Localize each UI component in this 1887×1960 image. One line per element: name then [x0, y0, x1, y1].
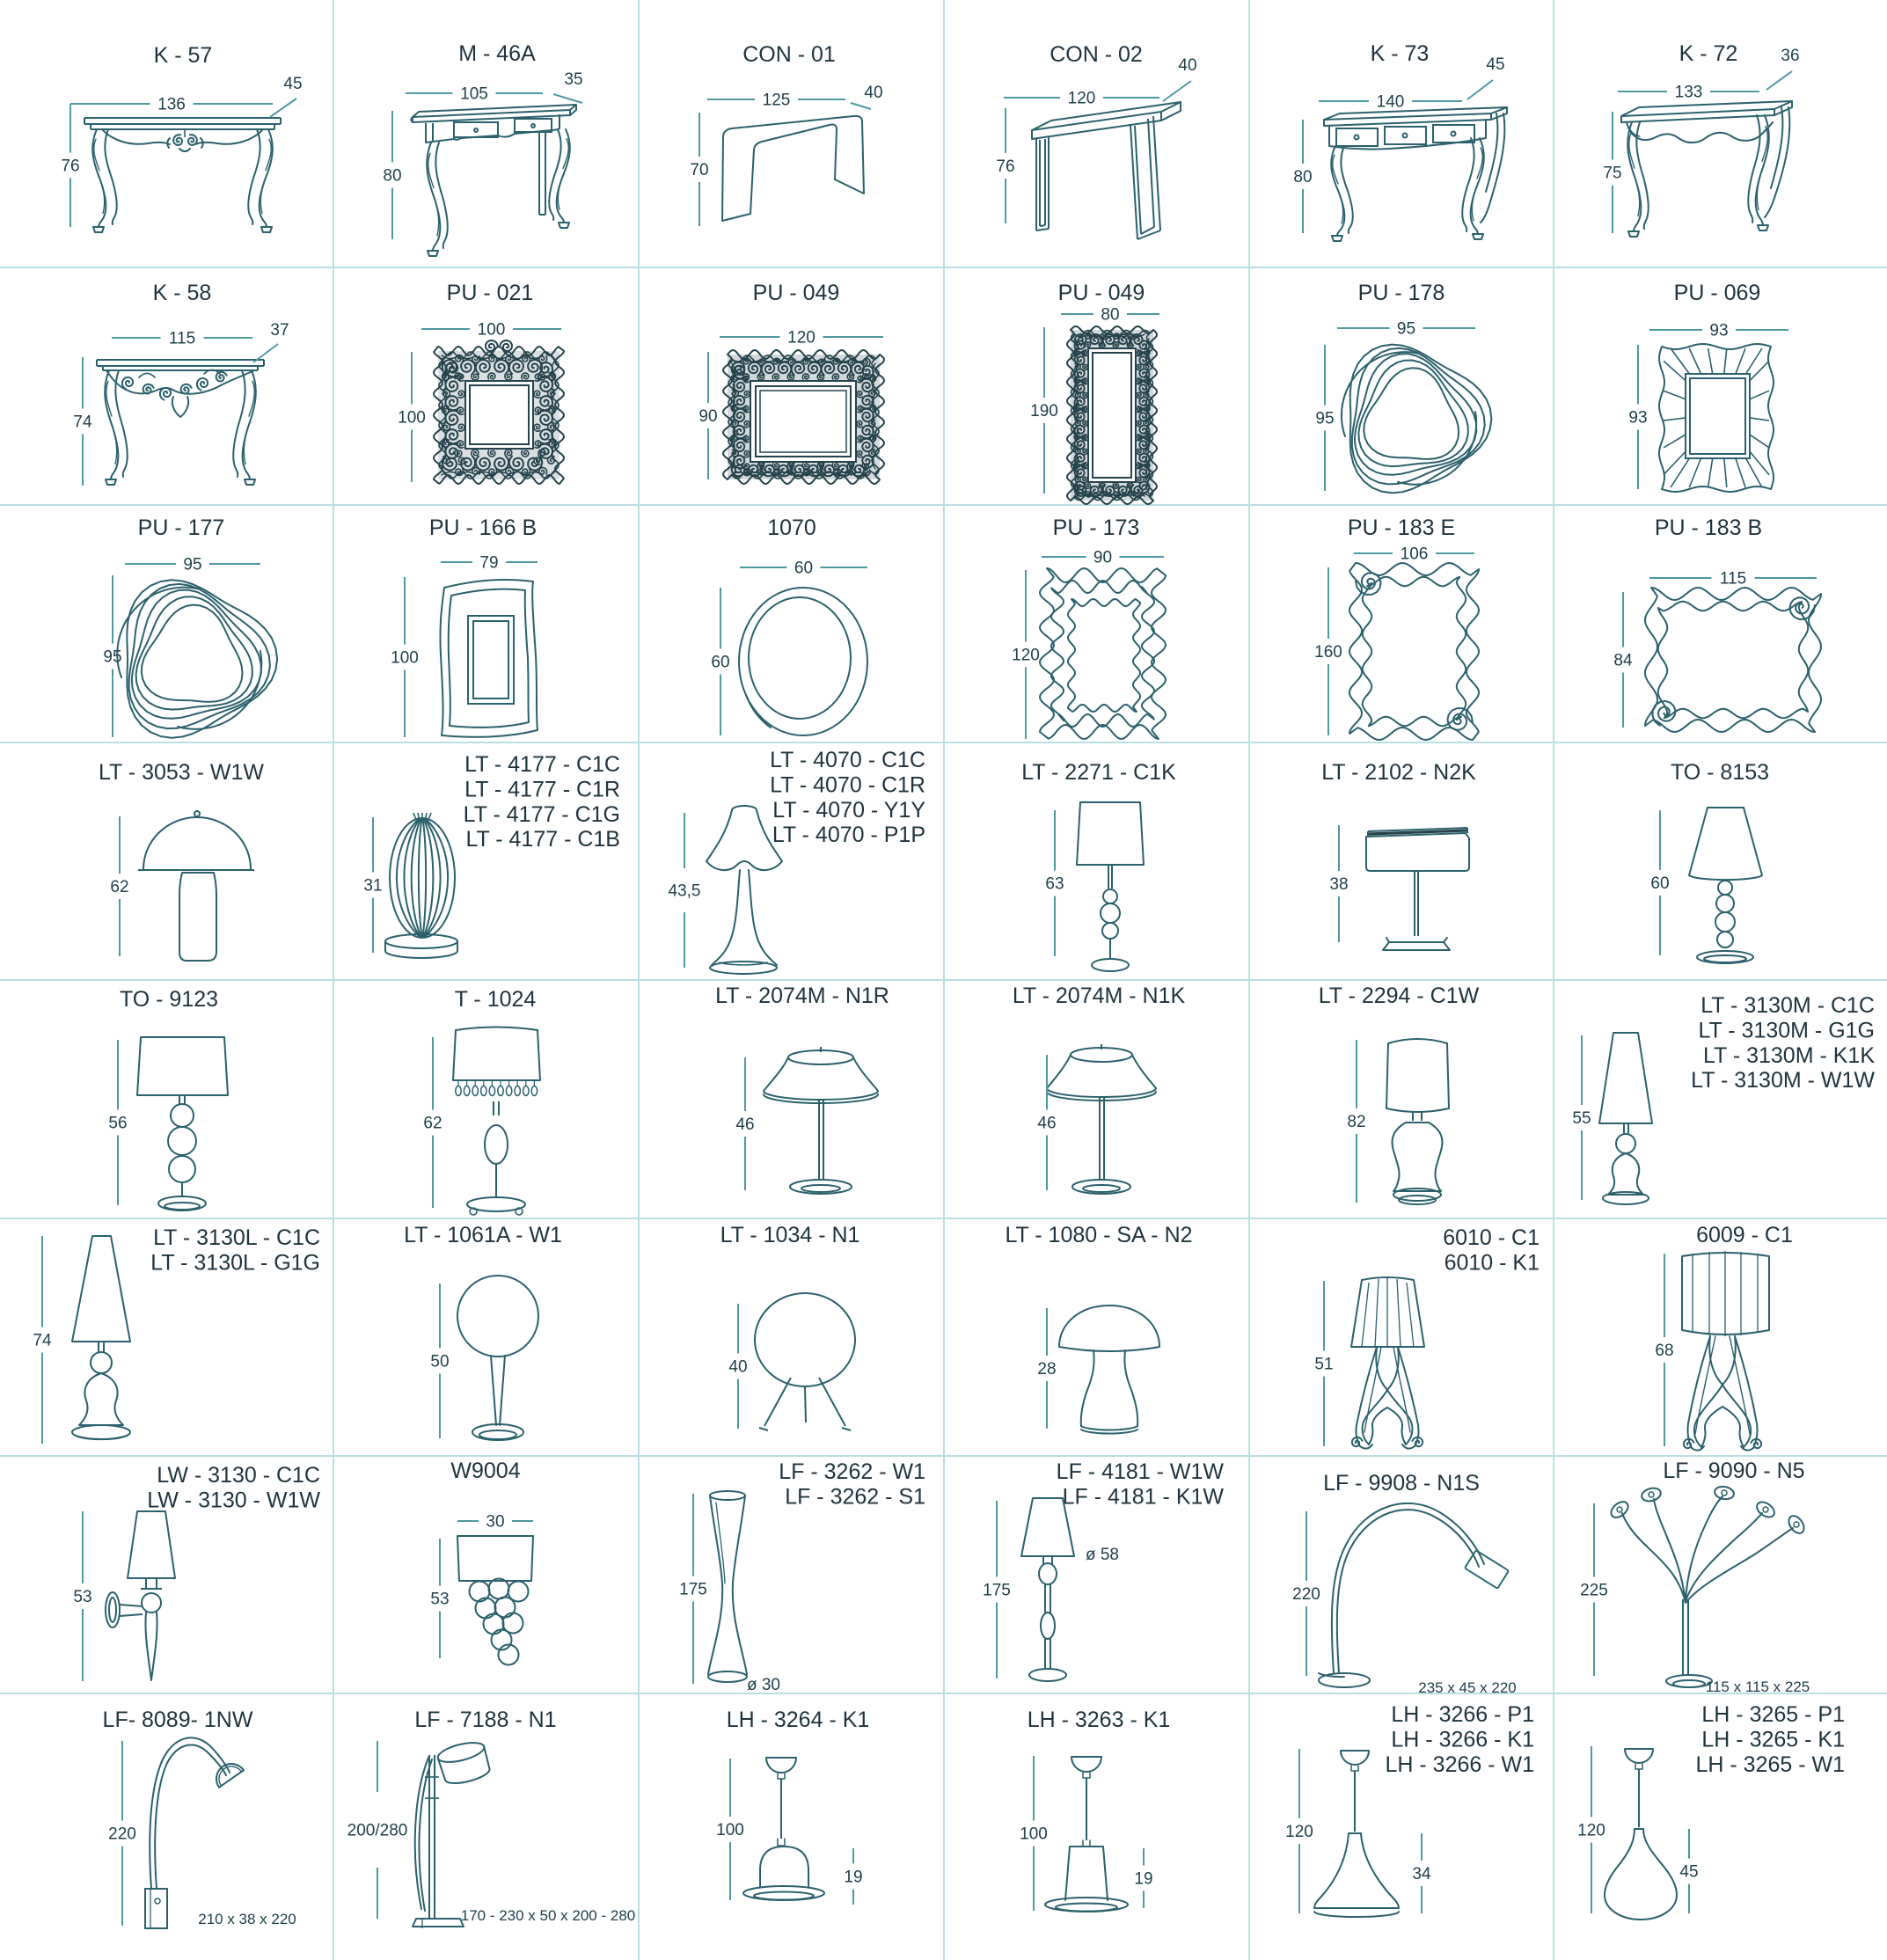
svg-text:225: 225: [1580, 1582, 1608, 1600]
svg-text:40: 40: [864, 84, 882, 102]
svg-text:LT - 4070 - C1R: LT - 4070 - C1R: [770, 772, 925, 797]
svg-text:TO - 9123: TO - 9123: [120, 987, 218, 1012]
svg-text:90: 90: [1093, 549, 1112, 567]
svg-text:M - 46A: M - 46A: [458, 41, 536, 66]
svg-text:LT - 4177 - C1R: LT - 4177 - C1R: [464, 777, 620, 801]
svg-text:ø 58: ø 58: [1086, 1546, 1119, 1564]
svg-text:170 - 230 x 50 x 200 - 280: 170 - 230 x 50 x 200 - 280: [461, 1907, 635, 1924]
svg-text:37: 37: [270, 321, 289, 340]
svg-text:LT - 4070 - C1C: LT - 4070 - C1C: [770, 748, 925, 772]
svg-text:75: 75: [1603, 165, 1621, 183]
svg-text:LT - 3130L - G1G: LT - 3130L - G1G: [150, 1250, 320, 1275]
svg-text:LT - 3130M - W1W: LT - 3130M - W1W: [1691, 1068, 1875, 1093]
svg-text:LT - 3130M - C1C: LT - 3130M - C1C: [1700, 993, 1875, 1018]
svg-text:LT - 3130M - G1G: LT - 3130M - G1G: [1698, 1018, 1875, 1042]
svg-text:36: 36: [1781, 47, 1799, 65]
svg-text:LF - 3262 - S1: LF - 3262 - S1: [785, 1484, 925, 1509]
svg-text:50: 50: [430, 1353, 449, 1371]
svg-text:51: 51: [1314, 1356, 1333, 1374]
svg-text:LT - 4070 - P1P: LT - 4070 - P1P: [772, 823, 925, 847]
svg-text:95: 95: [1315, 410, 1334, 428]
svg-text:100: 100: [716, 1821, 744, 1839]
svg-text:93: 93: [1628, 409, 1647, 428]
svg-text:19: 19: [1134, 1870, 1152, 1889]
svg-text:TO - 8153: TO - 8153: [1671, 760, 1769, 785]
svg-text:106: 106: [1401, 545, 1429, 564]
svg-text:LF - 9908 - N1S: LF - 9908 - N1S: [1323, 1471, 1480, 1496]
svg-text:120: 120: [1285, 1823, 1313, 1841]
svg-text:LF- 8089- 1NW: LF- 8089- 1NW: [103, 1708, 253, 1732]
svg-text:160: 160: [1314, 643, 1342, 662]
svg-text:70: 70: [690, 161, 708, 179]
svg-text:LW - 3130 - W1W: LW - 3130 - W1W: [147, 1488, 320, 1512]
svg-text:LT - 3053 - W1W: LT - 3053 - W1W: [99, 760, 264, 785]
svg-text:LT - 4070 - Y1Y: LT - 4070 - Y1Y: [772, 798, 925, 823]
svg-text:34: 34: [1412, 1865, 1431, 1883]
svg-text:68: 68: [1655, 1342, 1673, 1360]
svg-text:175: 175: [983, 1582, 1011, 1600]
svg-text:60: 60: [711, 654, 729, 672]
svg-text:95: 95: [103, 648, 121, 667]
svg-text:LT - 4177 - C1C: LT - 4177 - C1C: [464, 752, 620, 777]
svg-text:80: 80: [1101, 306, 1119, 325]
svg-text:PU - 021: PU - 021: [447, 281, 534, 305]
svg-text:LT - 1080 - SA - N2: LT - 1080 - SA - N2: [1005, 1223, 1192, 1247]
svg-text:84: 84: [1613, 652, 1633, 670]
svg-text:115: 115: [1720, 570, 1746, 589]
svg-text:W9004: W9004: [450, 1459, 520, 1483]
svg-text:100: 100: [1020, 1825, 1048, 1844]
svg-text:6009 - C1: 6009 - C1: [1696, 1223, 1793, 1247]
svg-text:95: 95: [1397, 320, 1415, 339]
svg-text:53: 53: [73, 1588, 91, 1606]
svg-text:125: 125: [763, 91, 791, 110]
svg-text:74: 74: [73, 413, 92, 432]
svg-text:LT - 1034 - N1: LT - 1034 - N1: [720, 1223, 860, 1247]
svg-text:PU - 069: PU - 069: [1674, 281, 1761, 305]
svg-text:LH - 3265 - W1: LH - 3265 - W1: [1695, 1752, 1845, 1777]
svg-text:PU - 178: PU - 178: [1358, 281, 1445, 305]
svg-text:6010 - C1: 6010 - C1: [1443, 1225, 1540, 1250]
svg-text:LH - 3266 - P1: LH - 3266 - P1: [1391, 1702, 1534, 1727]
svg-text:115: 115: [169, 330, 195, 348]
svg-text:K - 58: K - 58: [153, 281, 212, 305]
svg-text:40: 40: [728, 1358, 747, 1377]
svg-text:ø 30: ø 30: [747, 1676, 780, 1694]
svg-text:45: 45: [283, 75, 302, 93]
svg-text:PU - 173: PU - 173: [1053, 516, 1140, 540]
svg-text:235 x 45 x 220: 235 x 45 x 220: [1418, 1679, 1517, 1696]
svg-text:120: 120: [787, 329, 816, 347]
svg-text:115 x 115 x 225: 115 x 115 x 225: [1706, 1678, 1810, 1695]
svg-text:80: 80: [1293, 168, 1312, 186]
svg-text:56: 56: [108, 1115, 127, 1133]
svg-text:100: 100: [478, 321, 506, 340]
svg-text:62: 62: [423, 1115, 442, 1133]
svg-text:LH - 3263 - K1: LH - 3263 - K1: [1028, 1708, 1171, 1732]
svg-text:LT - 1061A - W1: LT - 1061A - W1: [404, 1223, 562, 1247]
svg-text:LF - 4181 - K1W: LF - 4181 - K1W: [1063, 1484, 1225, 1509]
svg-text:220: 220: [108, 1825, 136, 1844]
svg-text:K - 73: K - 73: [1371, 41, 1430, 66]
svg-text:120: 120: [1577, 1822, 1605, 1840]
svg-text:60: 60: [794, 559, 813, 578]
svg-text:46: 46: [735, 1115, 754, 1134]
svg-text:LF - 3262 - W1: LF - 3262 - W1: [779, 1459, 925, 1484]
svg-text:PU - 183 B: PU - 183 B: [1655, 516, 1762, 540]
svg-text:93: 93: [1709, 322, 1728, 340]
svg-text:55: 55: [1572, 1109, 1591, 1128]
svg-text:136: 136: [157, 96, 186, 114]
svg-text:210 x 38 x 220: 210 x 38 x 220: [198, 1911, 296, 1927]
svg-text:100: 100: [398, 409, 426, 428]
svg-text:100: 100: [391, 649, 419, 668]
svg-text:30: 30: [486, 1513, 504, 1532]
svg-text:T - 1024: T - 1024: [455, 987, 537, 1012]
svg-text:190: 190: [1030, 402, 1058, 421]
svg-text:35: 35: [564, 70, 582, 89]
svg-text:LW - 3130 - C1C: LW - 3130 - C1C: [157, 1463, 320, 1488]
svg-text:LH - 3264 - K1: LH - 3264 - K1: [727, 1708, 870, 1732]
svg-text:43,5: 43,5: [669, 882, 701, 901]
svg-text:CON - 01: CON - 01: [742, 42, 836, 67]
svg-text:LF - 4181 - W1W: LF - 4181 - W1W: [1057, 1459, 1225, 1484]
svg-text:PU - 166 B: PU - 166 B: [429, 516, 537, 540]
svg-text:LH - 3266 - K1: LH - 3266 - K1: [1391, 1727, 1534, 1752]
svg-text:175: 175: [679, 1581, 707, 1599]
svg-text:90: 90: [698, 407, 717, 426]
svg-text:63: 63: [1045, 875, 1064, 894]
svg-text:133: 133: [1675, 84, 1703, 102]
svg-text:53: 53: [430, 1591, 449, 1609]
svg-text:LH - 3265 - P1: LH - 3265 - P1: [1701, 1702, 1845, 1727]
svg-text:CON - 02: CON - 02: [1050, 42, 1143, 67]
svg-text:LT - 2074M - N1K: LT - 2074M - N1K: [1013, 984, 1186, 1008]
svg-text:LT - 2074M - N1R: LT - 2074M - N1R: [715, 984, 889, 1008]
svg-text:PU - 177: PU - 177: [138, 516, 225, 540]
svg-text:PU - 183 E: PU - 183 E: [1348, 516, 1455, 540]
svg-text:40: 40: [1178, 56, 1196, 75]
svg-text:19: 19: [844, 1869, 862, 1887]
svg-text:LT - 2294 - C1W: LT - 2294 - C1W: [1319, 984, 1480, 1008]
svg-text:45: 45: [1486, 55, 1504, 74]
svg-text:PU - 049: PU - 049: [1058, 281, 1145, 305]
svg-text:220: 220: [1292, 1585, 1320, 1604]
svg-text:K - 72: K - 72: [1679, 41, 1738, 66]
svg-text:LT - 4177 - C1G: LT - 4177 - C1G: [464, 802, 620, 827]
svg-text:6010 - K1: 6010 - K1: [1445, 1250, 1540, 1275]
svg-text:LT - 2102 - N2K: LT - 2102 - N2K: [1321, 760, 1476, 785]
svg-text:74: 74: [33, 1332, 52, 1350]
svg-text:60: 60: [1650, 874, 1669, 893]
svg-text:82: 82: [1347, 1113, 1365, 1131]
svg-text:45: 45: [1679, 1863, 1698, 1882]
svg-text:LT - 4177 - C1B: LT - 4177 - C1B: [465, 827, 620, 852]
svg-text:140: 140: [1377, 93, 1405, 112]
svg-text:LT - 3130M - K1K: LT - 3130M - K1K: [1703, 1043, 1875, 1068]
svg-text:PU - 049: PU - 049: [753, 281, 840, 305]
svg-text:200/280: 200/280: [347, 1822, 408, 1840]
svg-text:46: 46: [1037, 1115, 1056, 1133]
svg-text:120: 120: [1068, 90, 1096, 108]
svg-text:LH - 3266 - W1: LH - 3266 - W1: [1385, 1752, 1534, 1777]
svg-text:1070: 1070: [767, 516, 816, 540]
svg-text:120: 120: [1012, 647, 1040, 665]
svg-text:28: 28: [1037, 1360, 1056, 1379]
svg-text:62: 62: [110, 878, 128, 896]
svg-text:79: 79: [479, 554, 498, 573]
svg-text:105: 105: [460, 85, 488, 104]
svg-text:95: 95: [183, 556, 201, 574]
svg-text:31: 31: [363, 877, 382, 896]
svg-text:LH - 3265 - K1: LH - 3265 - K1: [1701, 1727, 1845, 1752]
svg-text:K - 57: K - 57: [154, 43, 213, 68]
svg-text:76: 76: [996, 157, 1014, 176]
svg-text:LT - 3130L - C1C: LT - 3130L - C1C: [153, 1225, 320, 1250]
svg-text:LF - 7188 - N1: LF - 7188 - N1: [414, 1708, 556, 1732]
svg-text:LF - 9090 - N5: LF - 9090 - N5: [1663, 1459, 1804, 1483]
svg-text:38: 38: [1329, 875, 1348, 894]
svg-text:LT - 2271 - C1K: LT - 2271 - C1K: [1021, 760, 1176, 785]
svg-text:76: 76: [61, 157, 79, 176]
svg-text:80: 80: [383, 167, 401, 186]
